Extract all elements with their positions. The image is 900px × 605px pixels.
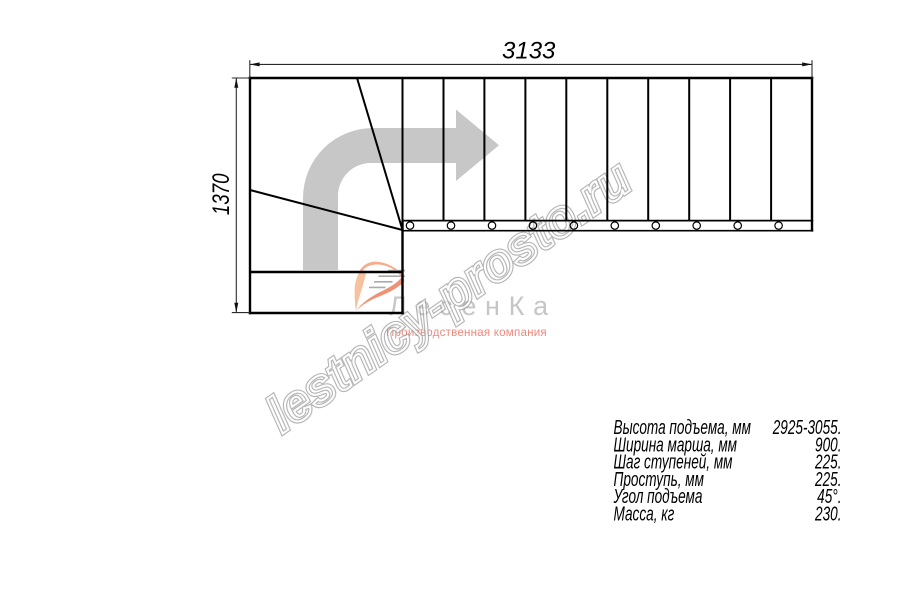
svg-text:230.: 230. [814, 503, 841, 525]
svg-text:3133: 3133 [502, 38, 556, 65]
svg-text:Масса, кг: Масса, кг [614, 503, 675, 525]
svg-text:1370: 1370 [208, 173, 235, 215]
